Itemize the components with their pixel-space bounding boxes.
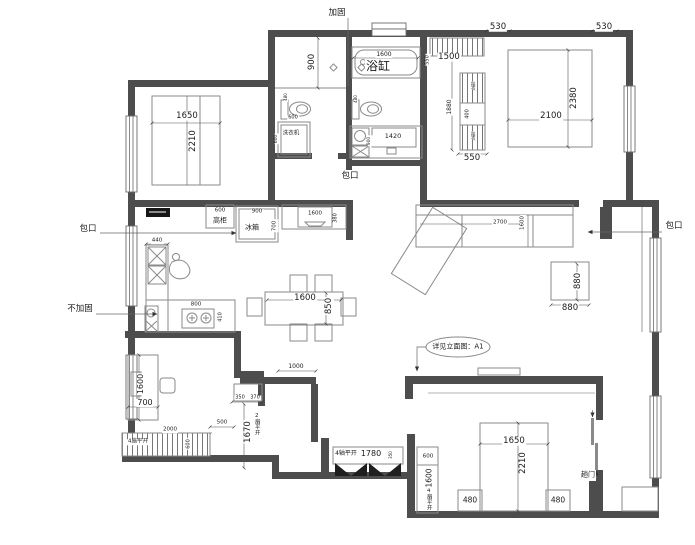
sliding-door bbox=[591, 410, 598, 478]
fridge bbox=[236, 206, 278, 242]
chair bbox=[315, 275, 332, 292]
bathroom-right bbox=[350, 47, 422, 158]
study-furniture bbox=[122, 355, 316, 468]
bedroom1-furniture bbox=[152, 96, 220, 185]
washing-machine bbox=[278, 122, 310, 157]
niche bbox=[234, 384, 262, 401]
kitchen-counter bbox=[146, 300, 235, 332]
shoe-cabinet bbox=[333, 447, 403, 464]
entry-furniture bbox=[333, 447, 403, 476]
floor-drain-icon-2 bbox=[358, 64, 365, 71]
corridor-wardrobe bbox=[417, 447, 438, 513]
tall-cabinet bbox=[206, 205, 234, 228]
floor-plan: 加固浴缸包口包口包口不加固高柜冰箱洗衣机详见立面图：A1趟门4扇平开2扇平开4轴… bbox=[0, 0, 695, 545]
bathroom-left bbox=[275, 38, 346, 157]
floor-plan-drawing bbox=[0, 0, 695, 545]
tv-cabinet bbox=[282, 205, 346, 229]
bed3 bbox=[480, 423, 548, 511]
chair bbox=[290, 275, 307, 292]
bathtub bbox=[352, 47, 420, 78]
vanity bbox=[350, 126, 422, 158]
kitchen-furniture bbox=[145, 205, 346, 332]
window-living bbox=[650, 238, 661, 332]
window-dining bbox=[126, 226, 137, 306]
toilet-1 bbox=[281, 100, 311, 119]
window-bath-top bbox=[372, 23, 406, 36]
window-bedroom2 bbox=[624, 86, 635, 152]
kitchen-sink bbox=[146, 245, 168, 332]
dining-furniture bbox=[247, 275, 356, 341]
chaise bbox=[391, 207, 466, 294]
tv-icon bbox=[305, 222, 325, 226]
living-furniture bbox=[391, 205, 595, 393]
window-bedroom1 bbox=[126, 116, 137, 192]
bed1 bbox=[152, 96, 220, 185]
nightstand bbox=[458, 490, 482, 511]
elevation-note-leader bbox=[417, 347, 426, 371]
dining-table bbox=[265, 292, 343, 325]
windows bbox=[126, 23, 661, 478]
toilet-2 bbox=[352, 100, 382, 119]
closet-top bbox=[430, 38, 484, 56]
wall-pier-box bbox=[622, 487, 658, 511]
person-figure bbox=[169, 254, 190, 279]
coffee-table bbox=[551, 262, 589, 305]
nightstand bbox=[546, 490, 570, 511]
tv-console bbox=[478, 368, 520, 375]
faucet-icon bbox=[387, 148, 396, 154]
master-furniture bbox=[417, 410, 658, 513]
sofa bbox=[391, 205, 573, 295]
stove bbox=[182, 309, 214, 328]
bed2 bbox=[508, 50, 592, 147]
bedroom2-furniture bbox=[430, 31, 617, 154]
chair bbox=[290, 324, 307, 341]
study-wardrobe bbox=[122, 433, 210, 456]
chair bbox=[315, 324, 332, 341]
elevation-note-bubble bbox=[426, 337, 490, 357]
chair bbox=[247, 298, 262, 316]
desk-chair bbox=[160, 378, 175, 393]
small-basin bbox=[145, 306, 158, 332]
floor-drain-icon bbox=[330, 64, 337, 71]
window-master bbox=[650, 396, 661, 478]
